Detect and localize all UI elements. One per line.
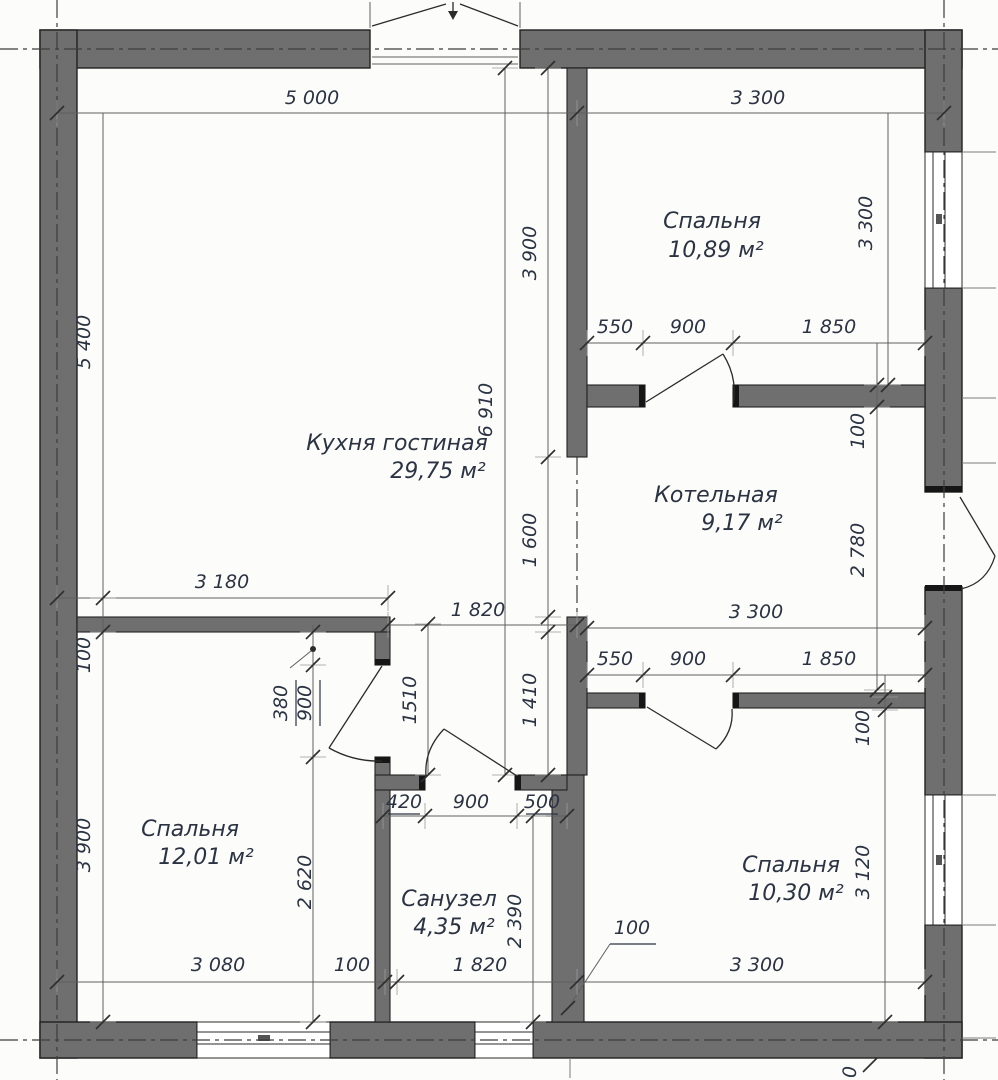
dim-bb-chain-2: 900 <box>670 648 706 670</box>
dim-bath-width: 1 820 <box>453 954 507 976</box>
dim-bath-chain-2: 900 <box>453 791 489 813</box>
door-exterior-boiler <box>960 497 995 589</box>
dim-top-right: 3 300 <box>731 87 785 109</box>
room-label-bedroom-top: Спальня 10,89 м² <box>663 209 764 263</box>
room-name: Санузел <box>401 887 497 912</box>
floor-plan: 5 000 3 300 3 180 1 820 550 900 1 850 3 … <box>0 0 998 1080</box>
dim-hall-width: 1 820 <box>451 599 505 621</box>
dim-boiler-chain-3: 1 850 <box>802 316 856 338</box>
dim-boiler-width: 3 300 <box>729 601 783 623</box>
dim-boiler-thk: 100 <box>847 413 869 449</box>
dim-bottom-right: 3 300 <box>730 954 784 976</box>
dim-bb-chain-3: 1 850 <box>802 648 856 670</box>
dim-boiler-chain-2: 900 <box>670 316 706 338</box>
dim-bb-chain-1: 550 <box>597 648 633 670</box>
dim-bath-chain-3: 500 <box>524 791 560 813</box>
dim-center-total: 6 910 <box>475 383 497 437</box>
dim-wall-leader: 100 <box>614 917 650 939</box>
entrance-arrow-icon <box>448 11 458 20</box>
room-area: 9,17 м² <box>701 511 783 536</box>
dim-center-upper: 3 900 <box>519 226 541 280</box>
dim-hall-right: 1 410 <box>519 673 541 727</box>
room-label-bedroom-bottom: Спальня 10,30 м² <box>742 853 844 906</box>
dim-kitchen-width: 3 180 <box>195 571 249 593</box>
door-bedroom-bottom <box>647 707 732 749</box>
dim-center-opening: 1 600 <box>519 513 541 567</box>
dim-bottom-left: 3 080 <box>191 954 245 976</box>
room-label-bathroom: Санузел 4,35 м² <box>401 887 497 940</box>
entrance-symbol <box>370 2 520 64</box>
door-bathroom <box>426 729 517 776</box>
room-name: Кухня гостиная <box>306 431 488 456</box>
dim-left-lower: 3 900 <box>73 818 95 872</box>
dimension-ticks <box>50 61 951 1072</box>
dim-bath-chain-1: 420 <box>386 791 422 813</box>
dim-below-door: 2 620 <box>294 855 316 909</box>
dimension-lines <box>57 68 944 1022</box>
room-area: 4,35 м² <box>413 915 495 940</box>
room-name: Спальня <box>663 209 761 234</box>
room-name: Котельная <box>654 483 778 508</box>
room-name: Спальня <box>742 853 840 878</box>
dim-boiler-height: 2 780 <box>847 523 869 577</box>
room-area: 29,75 м² <box>390 459 486 484</box>
dim-bath-height: 2 390 <box>504 894 526 948</box>
room-area: 10,30 м² <box>748 881 844 906</box>
room-label-kitchen: Кухня гостиная 29,75 м² <box>306 431 488 484</box>
dim-left-upper: 5 400 <box>73 315 95 369</box>
room-label-boiler: Котельная 9,17 м² <box>654 483 783 536</box>
door-swings <box>329 354 995 776</box>
interior-walls <box>77 68 925 1022</box>
door-leader-dot <box>310 646 316 652</box>
dim-bb-thk: 100 <box>852 710 874 746</box>
room-name: Спальня <box>141 817 239 842</box>
dim-boiler-chain-1: 550 <box>597 316 633 338</box>
dim-bottom-thk: 100 <box>334 954 370 976</box>
dim-edge-bottom-cut: 0 <box>839 1066 861 1078</box>
floor-plan-drawing: 5 000 3 300 3 180 1 820 550 900 1 850 3 … <box>0 0 998 1080</box>
door-boiler <box>646 354 734 404</box>
dim-bedroom-top-height: 3 300 <box>855 196 877 250</box>
door-bedroom-left <box>329 666 382 761</box>
dim-top-left: 5 000 <box>285 87 339 109</box>
dim-door-width: 900 <box>294 685 316 721</box>
room-area: 10,89 м² <box>668 238 764 263</box>
dim-bb-height: 3 120 <box>852 845 874 899</box>
dim-hall-left: 1510 <box>399 676 421 724</box>
dim-door-offset: 380 <box>270 685 292 721</box>
dim-left-thk: 100 <box>73 637 95 673</box>
room-label-bedroom-left: Спальня 12,01 м² <box>141 817 254 870</box>
room-area: 12,01 м² <box>158 845 254 870</box>
